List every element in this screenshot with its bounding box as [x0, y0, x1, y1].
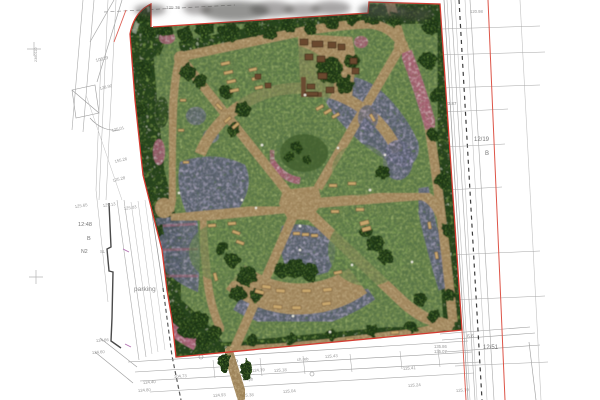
svg-text:124.60: 124.60 [92, 349, 106, 355]
svg-text:135.07: 135.07 [434, 349, 447, 354]
svg-text:ch.reb: ch.reb [297, 356, 310, 362]
svg-text:12:48: 12:48 [78, 222, 92, 228]
svg-text:6.6: 6.6 [467, 334, 474, 340]
svg-text:SL: SL [100, 249, 106, 254]
svg-text:124.66: 124.66 [96, 337, 110, 343]
svg-text:2360110: 2360110 [34, 48, 38, 63]
svg-text:124.40: 124.40 [143, 379, 157, 385]
svg-text:125.39: 125.39 [456, 387, 470, 393]
svg-text:125.24: 125.24 [408, 382, 422, 388]
svg-text:125.41: 125.41 [403, 365, 417, 371]
svg-text:12/51: 12/51 [483, 345, 499, 351]
svg-text:104.73: 104.73 [174, 373, 188, 379]
svg-text:N2: N2 [81, 249, 88, 255]
svg-text:124.93: 124.93 [213, 392, 227, 398]
svg-text:124.39: 124.39 [252, 367, 266, 373]
svg-text:B: B [485, 151, 489, 157]
svg-text:125.76: 125.76 [166, 5, 180, 10]
svg-text:B: B [87, 236, 91, 242]
svg-text:125.04: 125.04 [283, 388, 297, 394]
svg-text:parking: parking [134, 286, 156, 293]
svg-text:12/19: 12/19 [474, 137, 490, 143]
svg-text:124.80: 124.80 [138, 387, 152, 393]
svg-text:120.98: 120.98 [470, 9, 483, 14]
svg-text:125.18: 125.18 [274, 367, 288, 373]
svg-text:125.43: 125.43 [325, 353, 339, 359]
